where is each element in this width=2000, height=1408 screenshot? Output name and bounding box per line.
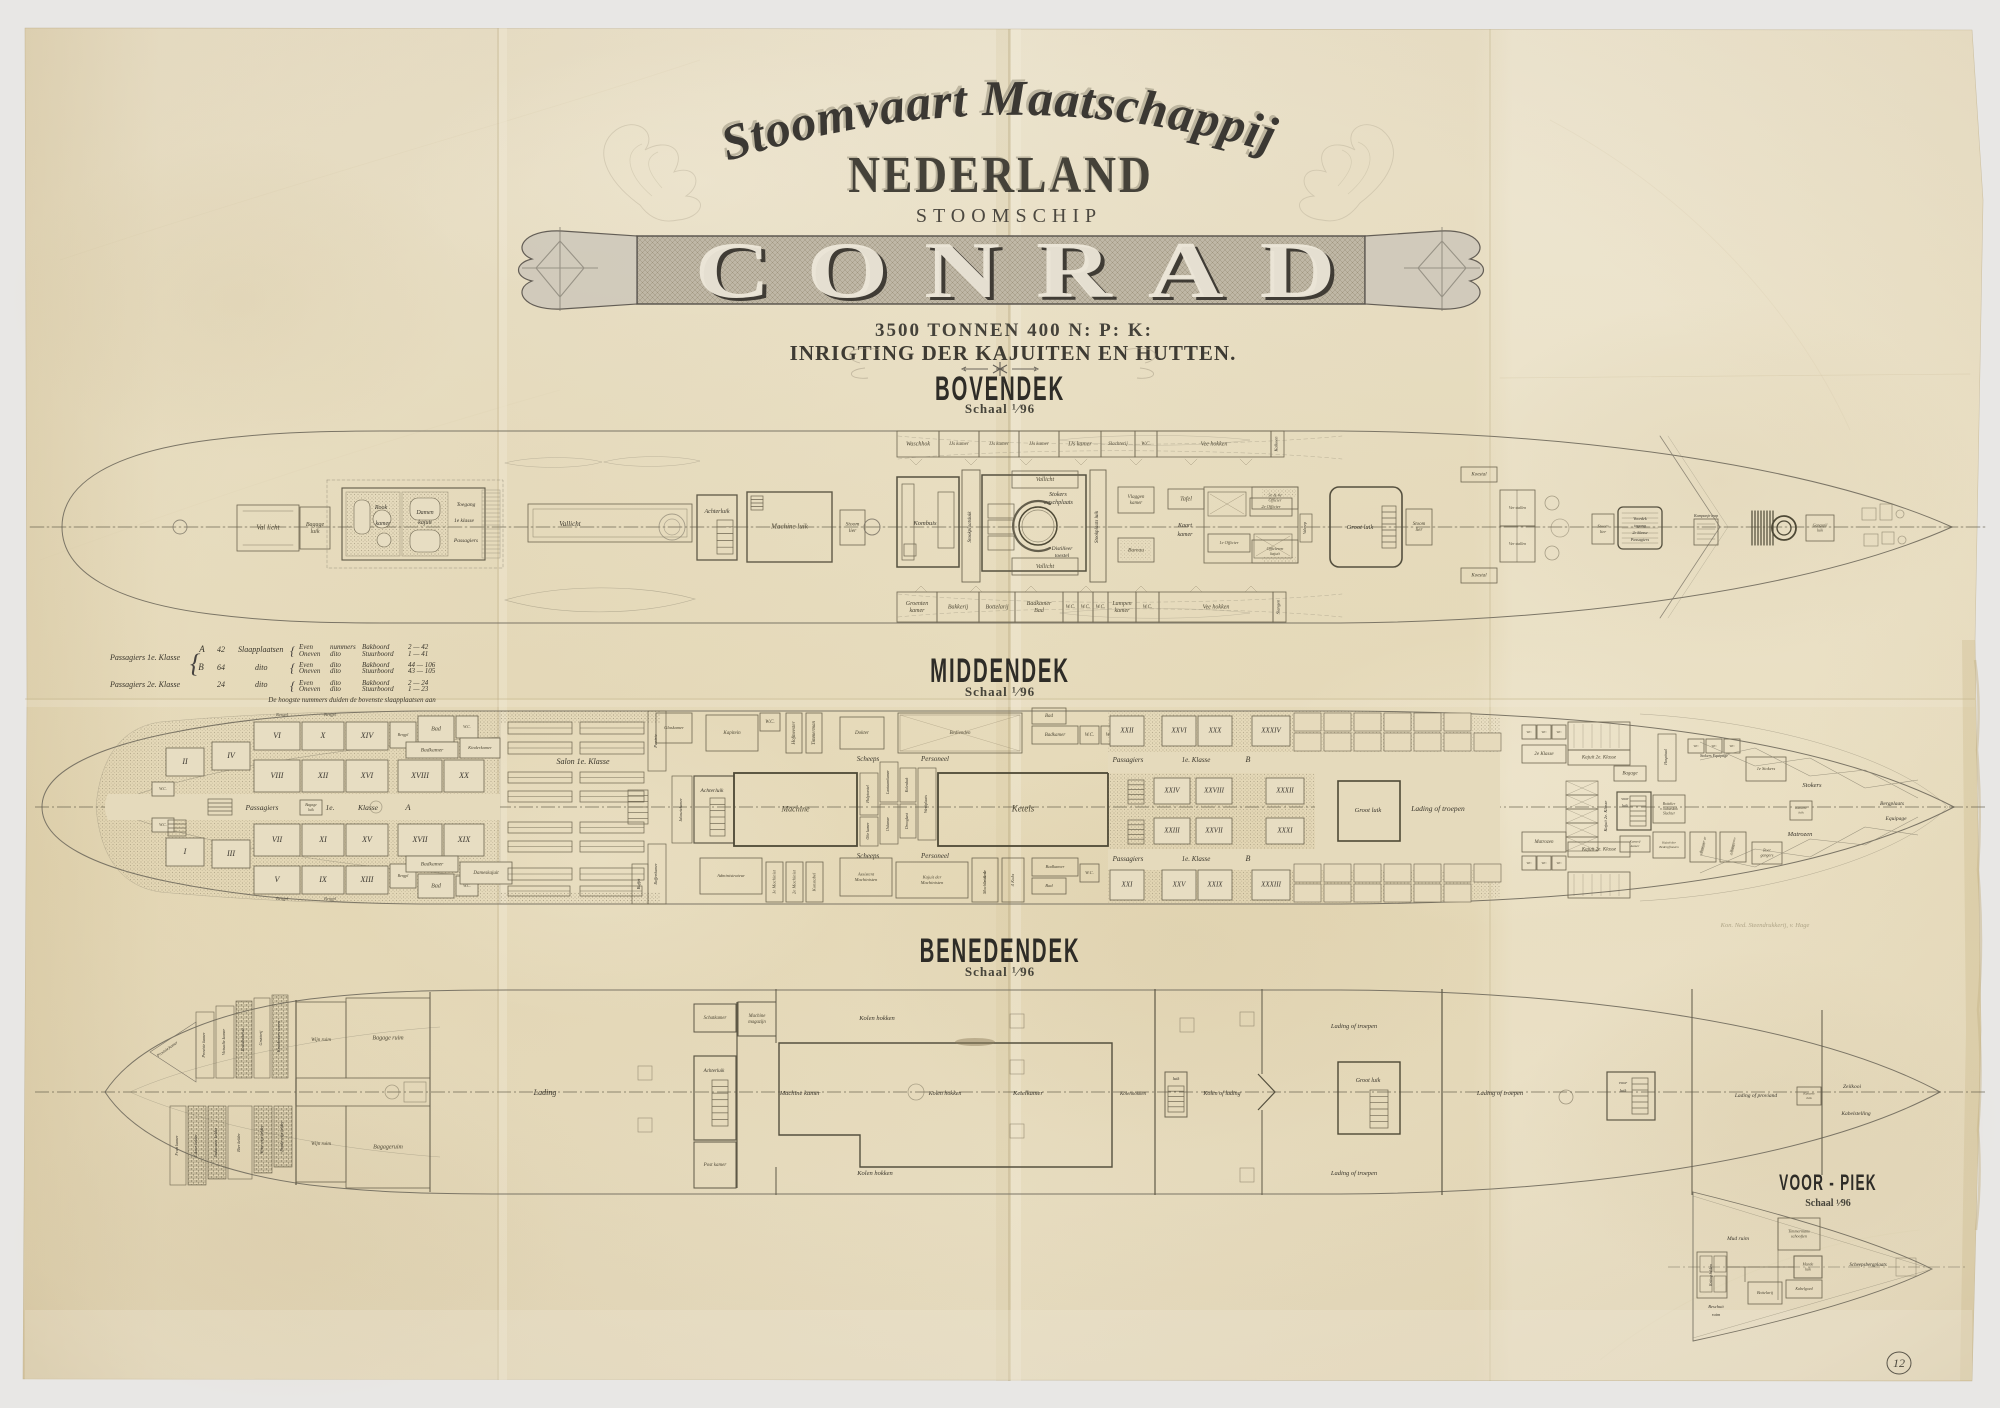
svg-text:WC: WC [1541, 730, 1547, 734]
svg-text:Passagiers 2e. Klasse: Passagiers 2e. Klasse [109, 680, 180, 689]
svg-text:43 — 105: 43 — 105 [408, 667, 436, 675]
svg-text:Kruideniers waren: Kruideniers waren [276, 1021, 281, 1053]
svg-text:XV: XV [361, 835, 373, 844]
svg-text:CONRAD: CONRAD [695, 226, 1372, 315]
svg-text:24: 24 [217, 680, 225, 689]
svg-text:{: { [290, 643, 296, 658]
svg-text:luik: luik [1620, 1088, 1628, 1093]
svg-text:XXX: XXX [1208, 727, 1223, 735]
svg-text:WC: WC [1526, 730, 1532, 734]
svg-text:VII: VII [272, 835, 283, 844]
svg-text:W.C.: W.C. [159, 822, 167, 827]
svg-text:Klasse: Klasse [357, 803, 379, 812]
svg-text:12: 12 [1893, 1356, 1905, 1370]
svg-text:Kabelgoed: Kabelgoed [1794, 1286, 1813, 1291]
svg-text:Provisie kamer: Provisie kamer [201, 1032, 206, 1059]
svg-text:Toegang: Toegang [457, 502, 476, 508]
svg-text:kamer: kamer [376, 521, 392, 527]
svg-text:toestel: toestel [1055, 553, 1070, 559]
svg-text:luik: luik [311, 529, 320, 535]
svg-text:Grutterij: Grutterij [258, 1030, 263, 1046]
svg-text:1e.: 1e. [326, 803, 335, 812]
svg-text:Mantle: Mantle [1802, 1262, 1814, 1266]
svg-text:XXIII: XXIII [1163, 827, 1180, 835]
svg-text:Stookplaatsluik: Stookplaatsluik [968, 511, 973, 543]
svg-text:Oneven: Oneven [299, 685, 321, 693]
svg-text:lier: lier [849, 528, 857, 534]
svg-text:Vallicht: Vallicht [559, 520, 581, 528]
svg-text:Kajuit der: Kajuit der [922, 874, 942, 879]
svg-text:XXVII: XXVII [1204, 827, 1223, 835]
svg-text:WC: WC [1693, 744, 1699, 748]
svg-text:IJs kamer: IJs kamer [948, 442, 969, 447]
svg-text:W.C.: W.C. [1066, 605, 1076, 610]
svg-text:Kapitein: Kapitein [722, 731, 741, 736]
svg-text:Stokers: Stokers [1802, 782, 1822, 789]
svg-text:Bad: Bad [1045, 883, 1053, 888]
svg-text:Badkamer: Badkamer [421, 747, 444, 753]
svg-text:Achterluik: Achterluik [704, 509, 730, 515]
svg-text:1 — 23: 1 — 23 [408, 685, 429, 693]
svg-text:Equipage: Equipage [1884, 816, 1907, 822]
svg-text:Lading of proviand: Lading of proviand [1734, 1092, 1778, 1099]
svg-text:Dokter: Dokter [854, 731, 869, 736]
svg-text:Wijn ruim: Wijn ruim [311, 1038, 331, 1043]
svg-text:XXXIV: XXXIV [1260, 727, 1281, 735]
svg-text:Passagiers: Passagiers [245, 803, 279, 812]
svg-text:1e. Klasse: 1e. Klasse [1182, 855, 1211, 863]
svg-text:voor: voor [1621, 796, 1629, 801]
svg-text:dito: dito [330, 667, 341, 675]
svg-text:Vee stallen: Vee stallen [1509, 505, 1526, 510]
svg-text:Val licht: Val licht [256, 524, 280, 532]
svg-text:Kolen hokken: Kolen hokken [928, 1091, 962, 1097]
svg-text:v. kabuiskok: v. kabuiskok [1660, 807, 1678, 811]
svg-text:Hulptoestel: Hulptoestel [866, 785, 870, 804]
svg-text:Glaskamer: Glaskamer [664, 725, 684, 730]
svg-text:Oneven: Oneven [299, 650, 321, 658]
svg-text:Fruit kamer: Fruit kamer [174, 1135, 179, 1156]
svg-text:Bad: Bad [431, 883, 442, 889]
svg-text:Timmerman: Timmerman [812, 721, 817, 745]
svg-text:Dameskajuit: Dameskajuit [472, 871, 499, 876]
svg-text:Jalouziekamer: Jalouziekamer [678, 798, 683, 822]
svg-text:Likeur kelder: Likeur kelder [193, 1134, 198, 1158]
svg-text:WC: WC [1526, 861, 1532, 865]
svg-text:Schaal ¹⁄96: Schaal ¹⁄96 [965, 401, 1035, 416]
svg-text:Badkamer: Badkamer [421, 861, 444, 867]
svg-text:Lading of troepen: Lading of troepen [1410, 804, 1465, 813]
svg-text:IJs kamer: IJs kamer [1028, 442, 1049, 447]
svg-text:NEDERLAND: NEDERLAND [848, 147, 1154, 204]
svg-text:A: A [404, 802, 411, 812]
svg-text:1e klasse: 1e klasse [454, 518, 475, 524]
svg-text:Voordek: Voordek [1633, 516, 1647, 521]
svg-text:Kalkoen: Kalkoen [1274, 436, 1279, 453]
svg-text:Kolenhokken: Kolenhokken [1119, 1092, 1147, 1097]
svg-text:Kolen hokken: Kolen hokken [856, 1170, 893, 1177]
svg-text:Stoom: Stoom [1597, 523, 1609, 528]
svg-text:XXII: XXII [1119, 727, 1134, 735]
svg-text:dito: dito [255, 663, 267, 672]
svg-text:kajuit: kajuit [418, 520, 432, 526]
svg-text:IJs kamer: IJs kamer [988, 442, 1009, 447]
svg-text:Slaapplaatsen: Slaapplaatsen [238, 645, 283, 654]
svg-text:De hoogste nummers duiden de b: De hoogste nummers duiden de bovenste sl… [267, 696, 436, 704]
svg-text:Bergpl: Bergpl [324, 712, 337, 717]
svg-text:XII: XII [317, 771, 329, 780]
svg-text:Bergpl: Bergpl [398, 873, 410, 878]
svg-text:XXI: XXI [1121, 881, 1134, 889]
svg-text:Kolenbak: Kolenbak [905, 777, 909, 793]
svg-text:Roode wijn kelder: Roode wijn kelder [279, 1121, 284, 1153]
svg-text:Koestal: Koestal [1470, 574, 1487, 579]
svg-text:Rook: Rook [374, 505, 388, 511]
svg-text:Ketting bakken: Ketting bakken [1709, 1264, 1713, 1287]
svg-text:Passagiers: Passagiers [1112, 855, 1144, 863]
svg-text:Kajuit 2e. Klasse: Kajuit 2e. Klasse [1603, 801, 1608, 833]
svg-text:Groot luik: Groot luik [1356, 1078, 1381, 1084]
svg-text:Groot luik: Groot luik [1347, 524, 1374, 531]
svg-text:XXIV: XXIV [1163, 787, 1180, 795]
svg-text:2e Officier: 2e Officier [1261, 504, 1281, 509]
svg-text:Werkplaats: Werkplaats [923, 795, 928, 813]
svg-text:magazijn: magazijn [748, 1020, 766, 1025]
svg-text:Oneven: Oneven [299, 667, 321, 675]
svg-text:Valreep: Valreep [1302, 522, 1307, 534]
svg-text:Beschuit: Beschuit [1708, 1304, 1724, 1309]
svg-text:XVIII: XVIII [410, 771, 429, 780]
svg-text:Stuurboord: Stuurboord [362, 667, 394, 675]
svg-text:WC: WC [1729, 744, 1735, 748]
svg-text:W.C.: W.C. [1085, 733, 1095, 738]
svg-text:ingang: ingang [1634, 523, 1646, 528]
svg-text:Scheepsbergplaats: Scheepsbergplaats [1849, 1263, 1886, 1268]
svg-text:W.C.: W.C. [1081, 605, 1091, 610]
svg-text:kamer: kamer [1130, 501, 1143, 506]
svg-text:XIX: XIX [457, 835, 472, 844]
svg-text:Vallicht: Vallicht [1036, 564, 1055, 570]
svg-text:B: B [198, 662, 204, 672]
svg-text:VI: VI [273, 731, 281, 740]
svg-text:2e Machinist: 2e Machinist [792, 869, 797, 894]
svg-text:Pantrie: Pantrie [653, 734, 658, 749]
svg-text:XXIX: XXIX [1206, 881, 1223, 889]
svg-text:Groenten: Groenten [906, 601, 928, 607]
svg-text:Bottelarij: Bottelarij [986, 604, 1009, 610]
svg-text:Stokers: Stokers [1049, 492, 1067, 498]
svg-text:Kabelstelling: Kabelstelling [1840, 1111, 1871, 1117]
svg-text:ruim: ruim [1712, 1312, 1721, 1317]
svg-text:Schatkamer: Schatkamer [704, 1016, 727, 1021]
svg-text:4 Koks: 4 Koks [1010, 873, 1015, 886]
svg-text:Lading: Lading [533, 1088, 557, 1097]
svg-text:Bier kelder: Bier kelder [236, 1133, 241, 1152]
svg-text:Distilleer: Distilleer [1051, 546, 1074, 552]
svg-text:1e Officier: 1e Officier [1219, 540, 1239, 545]
svg-text:XVII: XVII [411, 835, 427, 844]
svg-text:Salon 1e. Klasse: Salon 1e. Klasse [556, 757, 610, 766]
svg-text:Kombuis: Kombuis [912, 520, 937, 527]
svg-text:XX: XX [458, 771, 470, 780]
svg-text:luik: luik [1173, 1076, 1181, 1081]
svg-text:Schaal ¹⁄96: Schaal ¹⁄96 [965, 964, 1035, 979]
svg-text:Vee hokken: Vee hokken [1201, 441, 1228, 447]
svg-text:Wijn ruim: Wijn ruim [311, 1142, 331, 1147]
svg-text:Bergpl: Bergpl [276, 896, 289, 901]
svg-text:STOOMSCHIP: STOOMSCHIP [916, 205, 1102, 227]
svg-text:Witte wijn kelder: Witte wijn kelder [259, 1125, 264, 1154]
svg-text:Kajuit der: Kajuit der [1661, 841, 1677, 845]
svg-text:Kruideniersw.: Kruideniersw. [240, 1028, 245, 1053]
svg-text:Bergpl: Bergpl [398, 732, 410, 737]
svg-text:Bad: Bad [1034, 608, 1045, 614]
svg-text:Damen: Damen [415, 510, 433, 516]
svg-text:Bagageruim: Bagageruim [373, 1144, 403, 1150]
svg-text:IV: IV [226, 751, 236, 760]
svg-text:dito: dito [330, 685, 341, 693]
svg-text:Kolen of lading: Kolen of lading [1202, 1090, 1240, 1097]
svg-text:II: II [181, 757, 188, 766]
svg-text:Stuurboord: Stuurboord [362, 685, 394, 693]
svg-text:kajuit: kajuit [1270, 551, 1280, 556]
svg-text:XVI: XVI [360, 771, 374, 780]
svg-text:Buffet: Buffet [636, 878, 641, 889]
svg-text:Vlaggen: Vlaggen [1128, 495, 1145, 500]
svg-text:2e Klasse: 2e Klasse [1534, 752, 1554, 757]
svg-text:Personeel: Personeel [920, 852, 949, 860]
svg-text:Lading of troepen: Lading of troepen [1476, 1090, 1523, 1097]
svg-text:Bagage: Bagage [1622, 772, 1638, 777]
svg-text:VIII: VIII [271, 771, 284, 780]
svg-text:Kanarie: Kanarie [1794, 806, 1807, 810]
svg-text:Lading of troepen: Lading of troepen [1330, 1023, 1377, 1030]
svg-text:Achterluik: Achterluik [703, 1069, 726, 1074]
svg-text:I: I [183, 847, 187, 856]
svg-text:luik: luik [1817, 527, 1823, 532]
svg-text:WC: WC [1541, 861, 1547, 865]
svg-text:Machinisten: Machinisten [854, 877, 878, 882]
svg-text:Hofmeester: Hofmeester [792, 721, 797, 745]
svg-text:Kajuit 2e. Klasse: Kajuit 2e. Klasse [1581, 756, 1617, 761]
svg-text:1e Machinist: 1e Machinist [772, 869, 777, 894]
svg-text:kamer: kamer [1178, 532, 1194, 538]
svg-text:Passagiers: Passagiers [453, 538, 478, 544]
svg-text:voor: voor [1619, 1080, 1627, 1085]
svg-text:B: B [1246, 854, 1251, 863]
svg-text:1e Stokers: 1e Stokers [1757, 766, 1776, 771]
svg-text:1e. Klasse: 1e. Klasse [1182, 756, 1211, 764]
svg-text:2e klasse: 2e klasse [1632, 530, 1647, 535]
svg-text:lier: lier [1416, 528, 1423, 533]
svg-text:XIII: XIII [360, 875, 374, 884]
svg-text:Bagage: Bagage [305, 803, 317, 807]
svg-text:Ketels: Ketels [1011, 804, 1035, 814]
svg-text:III: III [226, 849, 235, 858]
svg-text:XXVIII: XXVIII [1203, 787, 1224, 795]
svg-text:WC: WC [1556, 861, 1562, 865]
svg-text:42: 42 [217, 645, 225, 654]
svg-text:Boffertkamer: Boffertkamer [653, 863, 658, 885]
svg-text:IX: IX [318, 875, 328, 884]
svg-text:XXXIII: XXXIII [1260, 881, 1281, 889]
svg-text:INRIGTING DER KAJUITEN EN HUTT: INRIGTING DER KAJUITEN EN HUTTEN. [790, 341, 1237, 365]
svg-text:Bergplaats: Bergplaats [1880, 801, 1904, 807]
svg-text:Bedergfloozen: Bedergfloozen [1659, 845, 1679, 849]
svg-text:luik: luik [1622, 803, 1628, 808]
svg-text:3500 TONNEN 400 N: P: K:: 3500 TONNEN 400 N: P: K: [875, 320, 1153, 341]
svg-text:Droogkast: Droogkast [905, 812, 909, 830]
svg-text:WC: WC [1556, 730, 1562, 734]
svg-text:Personeel: Personeel [920, 755, 949, 763]
svg-text:Bad: Bad [1045, 714, 1054, 719]
svg-text:XXVI: XXVI [1170, 727, 1187, 735]
svg-text:Konstabel: Konstabel [812, 872, 817, 892]
svg-text:A: A [198, 644, 205, 654]
svg-text:Scheeps: Scheeps [857, 852, 880, 860]
svg-text:Officier: Officier [1268, 498, 1281, 503]
svg-text:Lading of troepen: Lading of troepen [1330, 1170, 1377, 1177]
svg-text:Bagage ruim: Bagage ruim [372, 1035, 404, 1041]
svg-text:{: { [290, 660, 296, 675]
svg-text:Kajuit 2e. Klasse: Kajuit 2e. Klasse [1581, 848, 1617, 853]
svg-text:Bottelarij: Bottelarij [1757, 1290, 1774, 1295]
svg-text:luik: luik [1798, 811, 1804, 815]
svg-text:Groot luik: Groot luik [1355, 807, 1382, 814]
svg-text:W.C.: W.C. [463, 724, 471, 729]
svg-text:Olie kamer: Olie kamer [866, 822, 870, 839]
svg-text:Ketelkamer: Ketelkamer [1012, 1090, 1043, 1097]
svg-text:Kinderkamer: Kinderkamer [467, 745, 492, 750]
svg-text:1 — 41: 1 — 41 [408, 650, 428, 658]
svg-text:Achterluik: Achterluik [700, 788, 724, 794]
svg-text:Matrozen: Matrozen [1534, 840, 1554, 845]
svg-text:XI: XI [318, 835, 327, 844]
svg-text:Machine: Machine [748, 1014, 767, 1019]
svg-text:XXV: XXV [1172, 881, 1187, 889]
svg-text:kamer: kamer [910, 608, 926, 614]
svg-text:Assistent: Assistent [857, 871, 875, 876]
svg-text:Lantaarnkamer: Lantaarnkamer [886, 770, 890, 795]
svg-text:Koestal: Koestal [1470, 473, 1487, 478]
svg-text:Kanarie: Kanarie [1802, 1092, 1815, 1096]
svg-text:Kolen hokken: Kolen hokken [858, 1015, 895, 1022]
svg-text:gangers: gangers [1761, 852, 1774, 857]
svg-text:dito: dito [255, 680, 267, 689]
svg-text:Mud ruim: Mud ruim [1726, 1236, 1749, 1242]
svg-text:Stuurboord: Stuurboord [362, 650, 394, 658]
svg-text:Tafel: Tafel [1180, 495, 1192, 502]
svg-text:Passagiers: Passagiers [1112, 756, 1144, 764]
svg-text:schooften: schooften [1791, 1234, 1807, 1239]
svg-text:W.C.: W.C. [1143, 605, 1153, 610]
svg-text:Lampen: Lampen [1111, 601, 1131, 607]
svg-text:Bergpl: Bergpl [324, 896, 337, 901]
svg-text:luik: luik [308, 808, 314, 812]
svg-text:{: { [290, 678, 296, 693]
svg-text:lier: lier [1600, 529, 1606, 534]
svg-text:Bagage: Bagage [306, 522, 325, 528]
svg-text:Hospitaal: Hospitaal [1663, 748, 1668, 766]
svg-text:XXXI: XXXI [1276, 827, 1293, 835]
svg-text:XXXII: XXXII [1275, 787, 1294, 795]
svg-text:Passagiers 1e. Klasse: Passagiers 1e. Klasse [109, 653, 180, 662]
svg-text:Kaart: Kaart [1177, 523, 1192, 529]
svg-text:Machine: Machine [781, 804, 810, 813]
svg-text:Victualie kamer: Victualie kamer [221, 1028, 226, 1055]
svg-text:Matrozen: Matrozen [1787, 831, 1813, 838]
svg-text:VOOR - PIEK: VOOR - PIEK [1779, 1170, 1877, 1195]
svg-text:Schaal ¹⁄96: Schaal ¹⁄96 [1805, 1198, 1851, 1209]
svg-text:Bottelier: Bottelier [1663, 802, 1676, 806]
svg-text:Administrateur: Administrateur [716, 873, 745, 878]
svg-text:Machine luik: Machine luik [770, 523, 809, 531]
svg-text:Schaal ¹⁄96: Schaal ¹⁄96 [965, 684, 1035, 699]
svg-text:Badkamer: Badkamer [1045, 733, 1066, 738]
svg-text:Sodawater kelder: Sodawater kelder [213, 1127, 218, 1157]
svg-text:W.C.: W.C. [765, 720, 775, 725]
svg-text:W.C.: W.C. [1085, 870, 1094, 875]
svg-text:Bergpl: Bergpl [276, 712, 289, 717]
svg-text:Kon. Ned. Steendrukkerij, v. H: Kon. Ned. Steendrukkerij, v. Hage [1720, 922, 1810, 929]
svg-text:Stoom: Stoom [1413, 522, 1426, 527]
svg-text:W.C.: W.C. [1141, 442, 1151, 447]
svg-text:Machinisten: Machinisten [982, 871, 987, 895]
svg-text:Slachter: Slachter [1663, 811, 1676, 815]
svg-text:Zeilkooi: Zeilkooi [1843, 1084, 1861, 1090]
svg-text:Machine kamer: Machine kamer [779, 1090, 821, 1097]
svg-text:W.C.: W.C. [159, 786, 167, 791]
svg-text:Bad: Bad [431, 726, 442, 732]
svg-text:Stookplaats luik: Stookplaats luik [1095, 510, 1100, 543]
svg-text:B: B [1246, 755, 1251, 764]
svg-text:kamer: kamer [1631, 844, 1640, 848]
svg-text:Scheeps: Scheeps [857, 755, 880, 763]
svg-text:Stoom: Stoom [846, 522, 860, 528]
svg-text:Post kamer: Post kamer [703, 1163, 727, 1168]
svg-text:64: 64 [217, 663, 225, 672]
svg-text:Bakkerij: Bakkerij [948, 604, 969, 610]
svg-text:Machinisten: Machinisten [920, 880, 944, 885]
svg-text:IJskamer: IJskamer [886, 817, 890, 832]
svg-text:XIV: XIV [360, 731, 375, 740]
svg-text:Vallicht: Vallicht [1036, 477, 1055, 483]
svg-text:Vee stallen: Vee stallen [1509, 541, 1526, 546]
svg-text:luik: luik [1806, 1096, 1812, 1100]
svg-text:Stokers Equipage: Stokers Equipage [1700, 753, 1728, 758]
svg-text:Passagiers: Passagiers [1630, 537, 1650, 542]
svg-text:dito: dito [330, 650, 341, 658]
svg-text:Badkamer: Badkamer [1046, 864, 1065, 869]
svg-text:Kampanje trap: Kampanje trap [1693, 513, 1718, 518]
svg-text:Waschhok: Waschhok [906, 441, 930, 447]
svg-text:luik: luik [1805, 1267, 1811, 1271]
svg-text:Slangen: Slangen [1276, 599, 1281, 614]
